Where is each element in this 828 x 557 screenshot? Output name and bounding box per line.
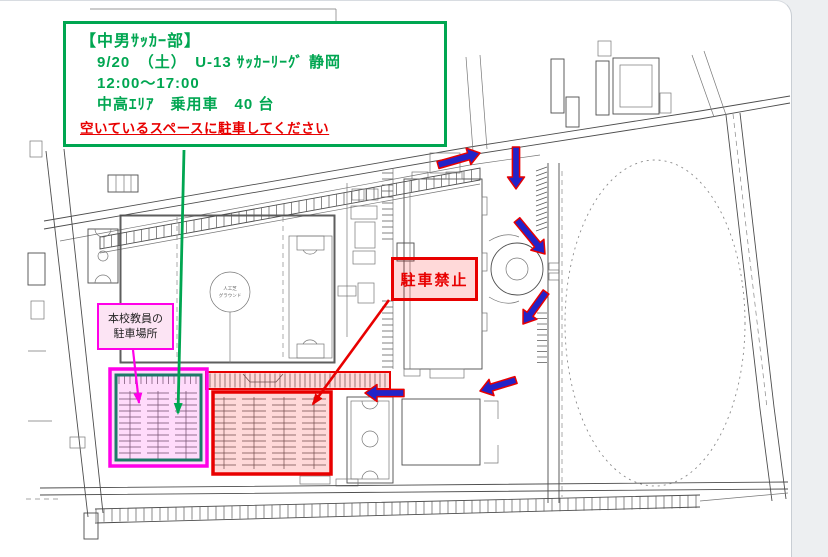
notice-line-time: 12:00～17:00 [80,73,438,94]
ground-label-line2: グラウンド [219,292,242,299]
flow-arrow-3 [514,218,545,254]
notice-title: 【中男ｻｯｶｰ部】 [80,31,438,52]
event-notice-box: 【中男ｻｯｶｰ部】 9/20 （土） U-13 ｻｯｶｰﾘｰｸﾞ 静岡 12:0… [63,21,447,147]
event-parking-area-highlight [110,369,207,466]
ground-label-line1: 人工芝 [223,285,237,292]
no-parking-strip-highlight [206,372,390,389]
teacher-parking-label-line1: 本校教員の [108,312,163,327]
no-parking-label-text: 駐車禁止 [400,269,468,290]
document-page-background: 人工芝 グラウンド 【中男ｻｯｶｰ部】 [0,0,828,557]
notice-instruction: 空いているスペースに駐車してください [80,118,438,139]
parking-highlights [110,369,390,474]
notice-line-area: 中高ｴﾘｱ 乗用車 40 台 [80,94,438,115]
no-parking-label: 駐車禁止 [391,257,478,301]
flow-arrow-5 [480,377,517,396]
notice-line-date: 9/20 （土） U-13 ｻｯｶｰﾘｰｸﾞ 静岡 [80,52,438,73]
no-parking-area-highlight [213,392,331,474]
campus-parking-map-page: 人工芝 グラウンド 【中男ｻｯｶｰ部】 [0,0,792,557]
flow-arrow-4 [523,290,549,324]
teacher-parking-label: 本校教員の 駐車場所 [97,303,174,350]
flow-arrow-2 [508,147,525,189]
teacher-parking-label-line2: 駐車場所 [114,327,158,342]
